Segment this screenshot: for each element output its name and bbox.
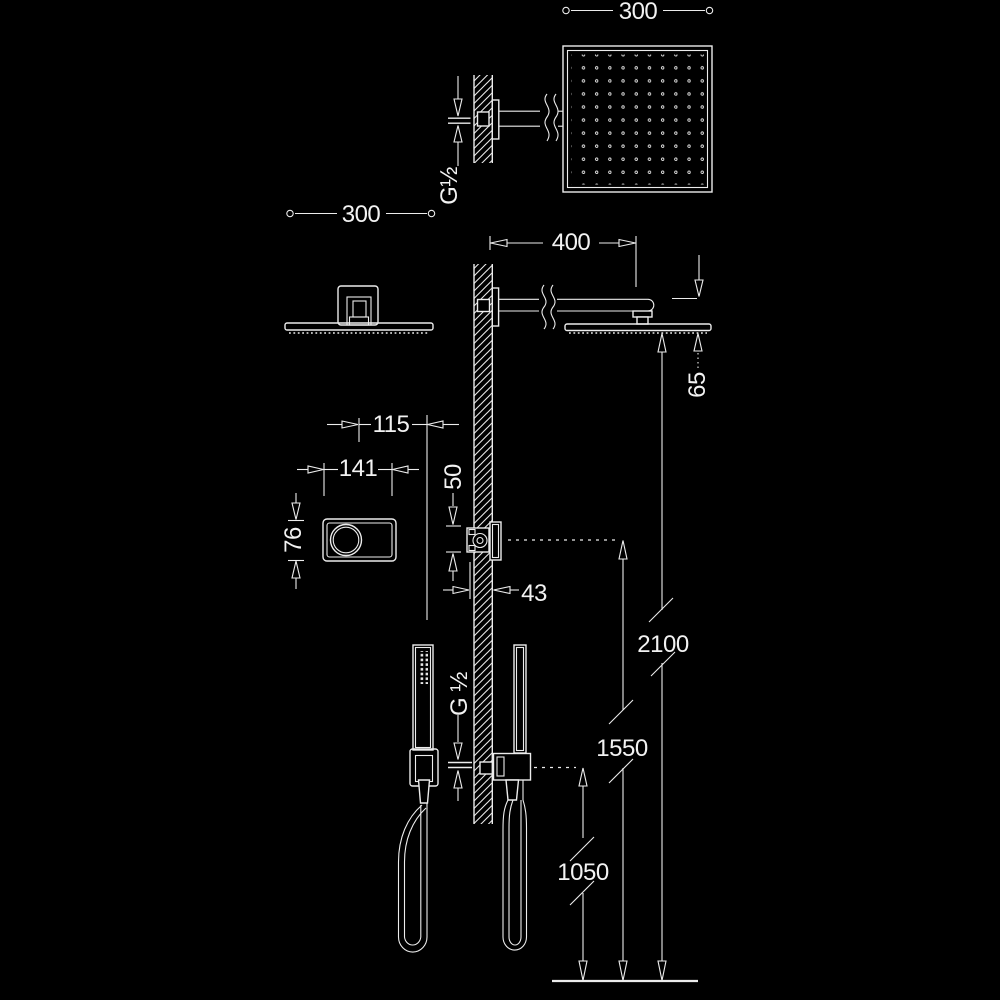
dim-valve-offset-label: 115 bbox=[373, 411, 410, 438]
arm-flange-plan bbox=[492, 100, 499, 139]
hose-connector-side bbox=[506, 780, 519, 800]
dim-head-drop-label: 65 bbox=[684, 372, 711, 398]
hose-outlet-elbow bbox=[480, 762, 492, 774]
dim-thread-top-label: G½ bbox=[436, 167, 463, 205]
head-connector-upper bbox=[633, 311, 652, 317]
dim-valve-plate-height-label: 76 bbox=[280, 527, 307, 553]
wall-elbow-elevation bbox=[478, 300, 490, 312]
arm-flange-elevation bbox=[492, 288, 498, 326]
valve-trim-plate-side bbox=[490, 522, 501, 560]
handshower-spray-face bbox=[419, 651, 429, 684]
dim-height-head-label: 2100 bbox=[637, 631, 689, 658]
dim-height-valve-label: 1550 bbox=[596, 735, 648, 762]
dim-valve-depth-label: 43 bbox=[521, 580, 547, 607]
technical-drawing-canvas: 300 G½ 300 bbox=[0, 0, 1000, 1000]
background bbox=[0, 0, 1000, 1000]
dim-valve-body-height-label: 50 bbox=[440, 464, 467, 490]
head-connector-lower bbox=[637, 317, 648, 324]
wall-elbow-plan bbox=[478, 112, 490, 126]
dim-head-width-front-label: 300 bbox=[342, 201, 381, 228]
dim-valve-plate-width-label: 141 bbox=[339, 455, 378, 482]
nozzle-grid bbox=[572, 55, 705, 185]
dim-arm-length-label: 400 bbox=[552, 229, 591, 256]
shower-installation-diagram: 300 G½ 300 bbox=[0, 0, 1000, 1000]
valve-body-side bbox=[467, 528, 489, 552]
dim-thread-bottom-label: G ½ bbox=[446, 672, 473, 716]
dim-height-handshower-label: 1050 bbox=[557, 859, 609, 886]
dim-head-width-plan-label: 300 bbox=[619, 0, 658, 25]
plan-view-shower-head bbox=[563, 46, 712, 192]
handshower-tail bbox=[419, 780, 430, 803]
